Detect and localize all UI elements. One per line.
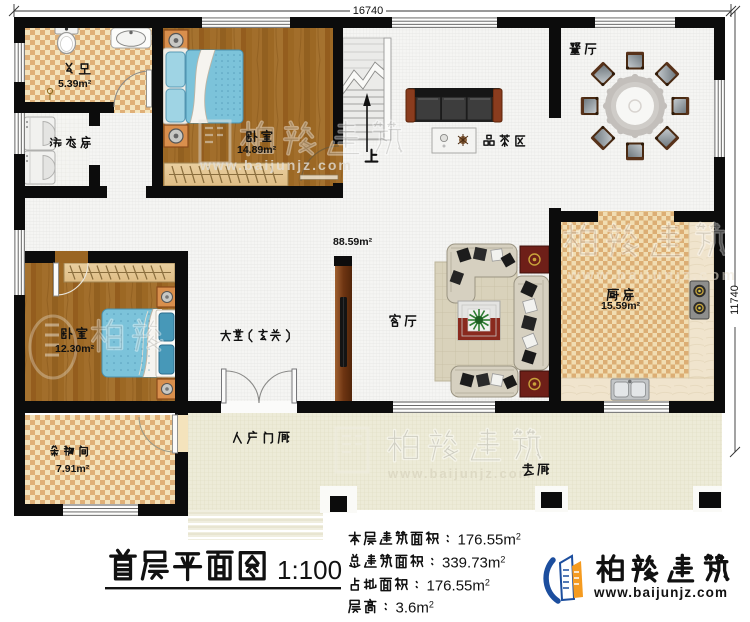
svg-text:www.baijunjz.com: www.baijunjz.com: [567, 267, 737, 284]
svg-text:88.59m²: 88.59m²: [333, 236, 373, 248]
svg-text:www.baijunjz.com: www.baijunjz.com: [199, 157, 353, 173]
svg-text:15.59m²: 15.59m²: [601, 300, 641, 312]
svg-text:11740: 11740: [729, 285, 741, 315]
svg-text:7.91m²: 7.91m²: [56, 463, 90, 475]
svg-text:339.73m2: 339.73m2: [442, 555, 505, 572]
svg-text:3.6m2: 3.6m2: [396, 600, 434, 617]
svg-text:176.55m2: 176.55m2: [427, 578, 490, 595]
svg-text:12.30m²: 12.30m²: [55, 343, 95, 355]
svg-text:www.baijunjz.com: www.baijunjz.com: [593, 585, 728, 600]
svg-text:5.39m²: 5.39m²: [58, 78, 92, 90]
svg-text:176.55m2: 176.55m2: [458, 532, 521, 549]
svg-text:1:100: 1:100: [277, 555, 342, 585]
svg-text:14.89m²: 14.89m²: [237, 144, 277, 156]
svg-text:16740: 16740: [353, 5, 384, 17]
svg-text:www.baijunjz.com: www.baijunjz.com: [387, 466, 532, 481]
